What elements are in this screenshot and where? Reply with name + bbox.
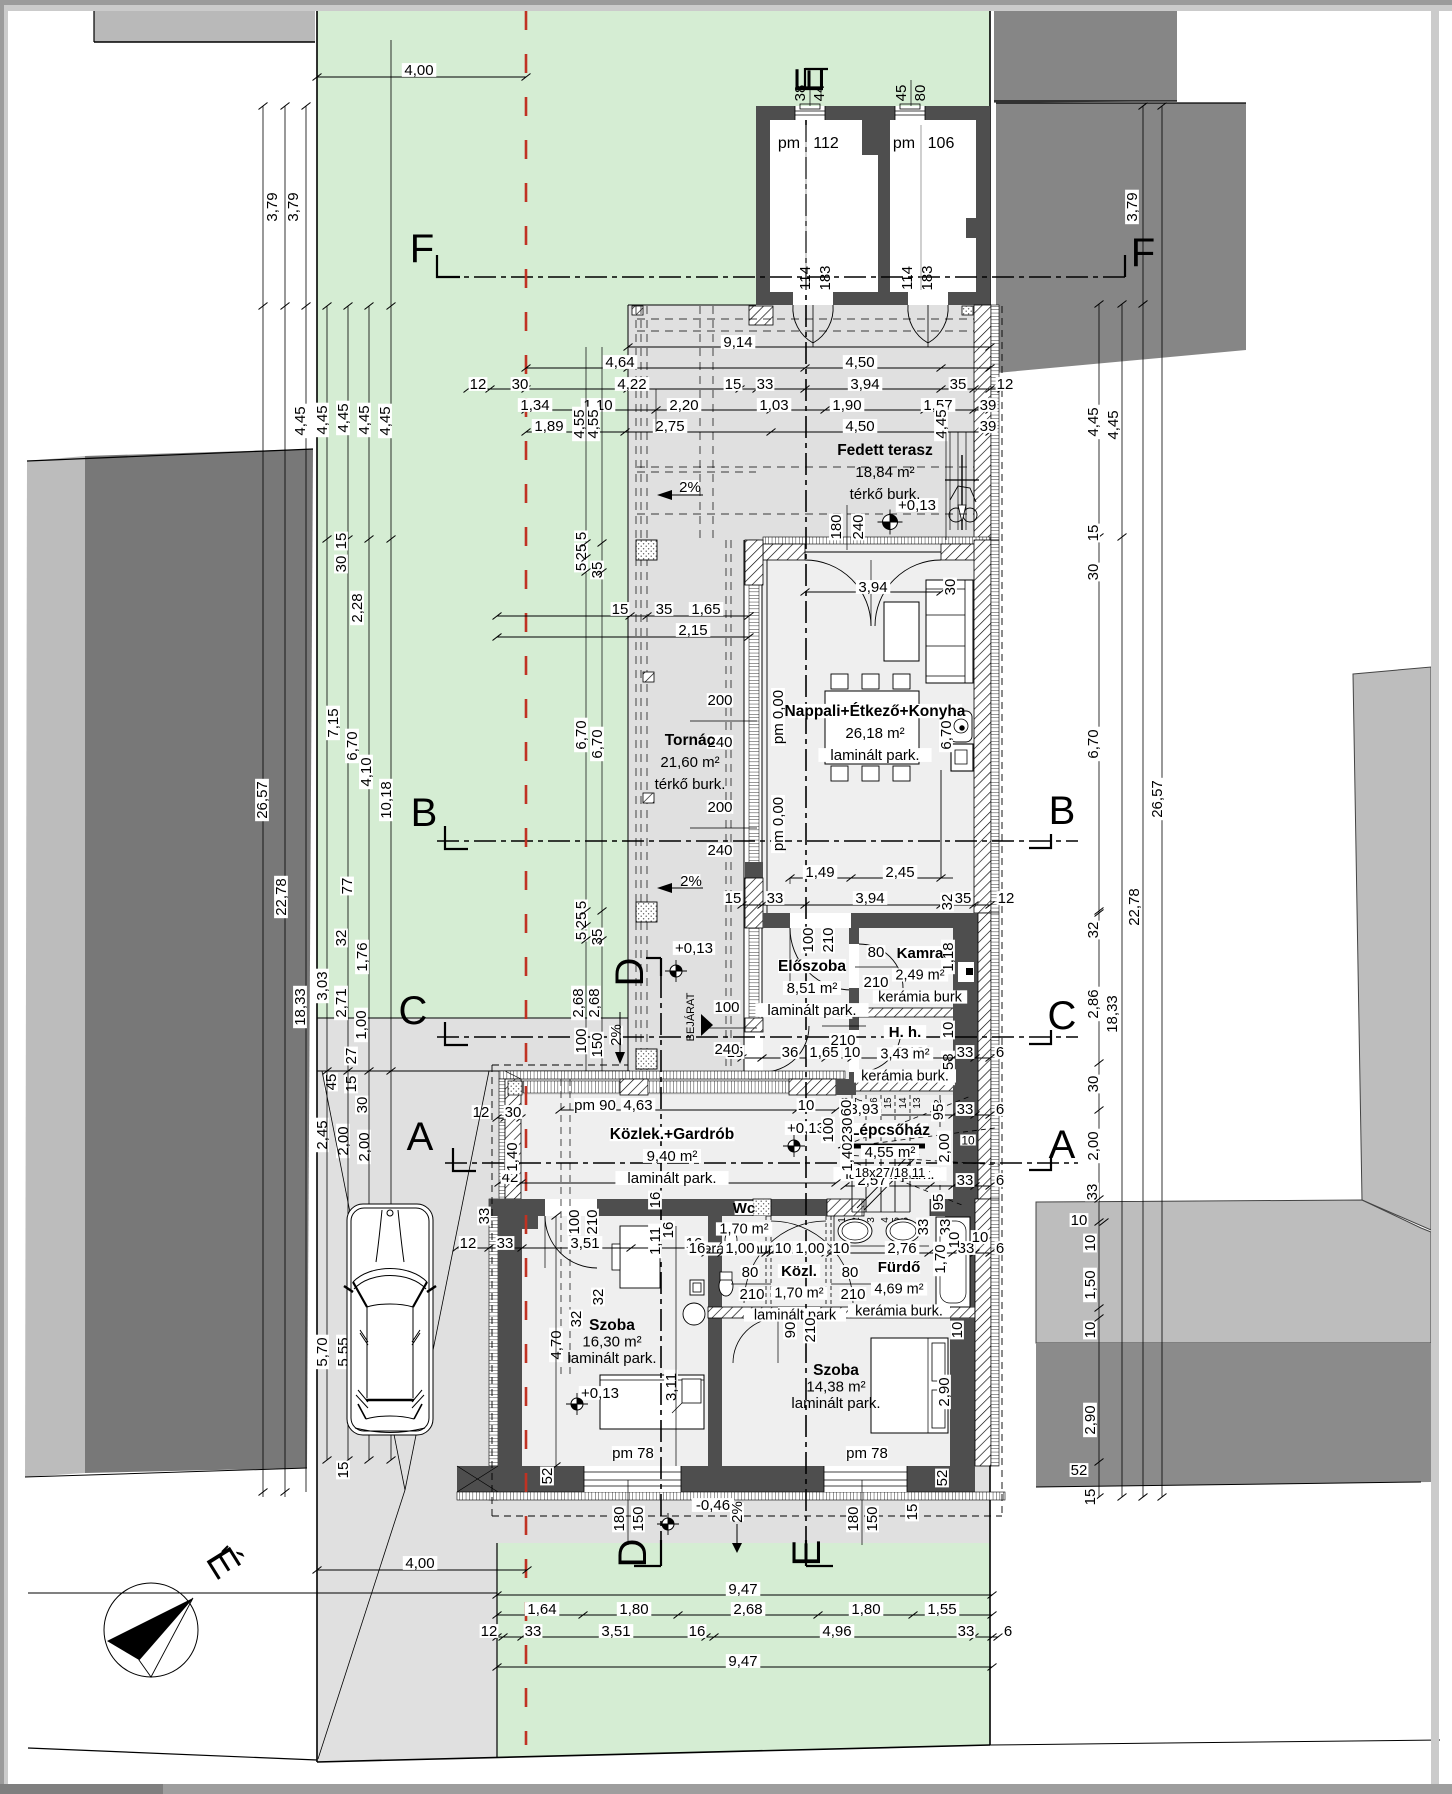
svg-text:-0,46: -0,46 xyxy=(696,1497,730,1514)
svg-text:33: 33 xyxy=(757,376,774,393)
svg-text:1,03: 1,03 xyxy=(759,397,788,414)
svg-text:Közl.: Közl. xyxy=(781,1263,817,1280)
svg-text:1,70 m²: 1,70 m² xyxy=(774,1286,823,1302)
svg-text:100: 100 xyxy=(573,1028,590,1053)
svg-text:80: 80 xyxy=(868,944,885,961)
svg-text:4,00: 4,00 xyxy=(404,62,433,79)
svg-text:15: 15 xyxy=(904,1504,921,1521)
svg-text:15: 15 xyxy=(725,890,742,907)
svg-text:Közlek.+Gardrób: Közlek.+Gardrób xyxy=(610,1126,734,1143)
svg-text:12: 12 xyxy=(481,1623,498,1640)
svg-text:32: 32 xyxy=(333,930,350,947)
svg-text:6: 6 xyxy=(996,1044,1004,1061)
svg-text:4,55 m²: 4,55 m² xyxy=(865,1144,916,1161)
svg-text:10: 10 xyxy=(775,1240,792,1257)
svg-text:térkő burk.: térkő burk. xyxy=(850,486,921,503)
svg-text:33: 33 xyxy=(915,1219,932,1236)
svg-text:106: 106 xyxy=(928,135,955,152)
svg-text:15: 15 xyxy=(725,376,742,393)
svg-text:240: 240 xyxy=(714,1041,739,1058)
svg-text:pm: pm xyxy=(893,135,915,152)
svg-text:4,63: 4,63 xyxy=(623,1097,652,1114)
svg-text:100: 100 xyxy=(566,1209,583,1234)
svg-text:6: 6 xyxy=(996,1172,1004,1189)
svg-text:4,45: 4,45 xyxy=(314,405,331,434)
svg-text:4,22: 4,22 xyxy=(617,376,646,393)
svg-text:21,60 m²: 21,60 m² xyxy=(660,754,719,771)
svg-text:D: D xyxy=(608,958,652,987)
svg-text:16: 16 xyxy=(689,1623,706,1640)
svg-text:183: 183 xyxy=(919,265,936,290)
svg-text:Kamra: Kamra xyxy=(897,945,944,962)
svg-text:laminált park.: laminált park. xyxy=(791,1395,880,1412)
svg-text:180: 180 xyxy=(611,1506,628,1531)
svg-text:C: C xyxy=(1048,994,1077,1038)
svg-text:2,45: 2,45 xyxy=(885,864,914,881)
svg-text:114: 114 xyxy=(797,266,814,290)
svg-text:2,49 m²: 2,49 m² xyxy=(895,968,944,984)
svg-text:4,10: 4,10 xyxy=(358,757,375,786)
svg-text:4,70: 4,70 xyxy=(548,1330,565,1359)
svg-text:+0,13: +0,13 xyxy=(675,940,713,957)
svg-text:12: 12 xyxy=(998,890,1015,907)
svg-text:33: 33 xyxy=(1084,1184,1101,1201)
svg-text:80: 80 xyxy=(742,1264,759,1281)
svg-text:10: 10 xyxy=(833,1240,850,1257)
svg-text:240: 240 xyxy=(850,514,867,539)
svg-text:2%: 2% xyxy=(608,1024,625,1046)
svg-text:16: 16 xyxy=(647,1192,664,1209)
svg-text:180: 180 xyxy=(845,1506,862,1531)
svg-text:Fedett terasz: Fedett terasz xyxy=(837,442,933,459)
svg-text:1,50: 1,50 xyxy=(1082,1270,1099,1299)
svg-text:33: 33 xyxy=(957,1101,974,1118)
svg-text:32: 32 xyxy=(590,1289,607,1306)
svg-text:150: 150 xyxy=(864,1506,881,1531)
svg-text:1,65: 1,65 xyxy=(691,601,720,618)
svg-text:1,40: 1,40 xyxy=(839,1142,856,1171)
svg-text:13: 13 xyxy=(912,1097,923,1109)
svg-text:4,64: 4,64 xyxy=(605,354,634,371)
svg-text:3: 3 xyxy=(866,1217,877,1223)
svg-text:Előszoba: Előszoba xyxy=(778,958,846,975)
svg-text:4,55: 4,55 xyxy=(585,409,602,438)
svg-text:6,70: 6,70 xyxy=(1085,729,1102,758)
svg-text:3,94: 3,94 xyxy=(850,376,879,393)
svg-text:32: 32 xyxy=(568,1311,585,1328)
svg-text:10: 10 xyxy=(844,1044,861,1061)
svg-text:4: 4 xyxy=(880,1217,891,1223)
svg-text:33: 33 xyxy=(497,1235,514,1252)
svg-text:3,51: 3,51 xyxy=(601,1623,630,1640)
svg-text:kerámia burk.: kerámia burk. xyxy=(855,1304,943,1320)
svg-text:7,15: 7,15 xyxy=(325,708,342,737)
svg-text:4,00: 4,00 xyxy=(405,1555,434,1572)
svg-text:1,80: 1,80 xyxy=(619,1601,648,1618)
svg-text:4,50: 4,50 xyxy=(845,418,874,435)
svg-text:210: 210 xyxy=(802,1317,819,1342)
svg-text:200: 200 xyxy=(707,799,732,816)
svg-text:1,00: 1,00 xyxy=(795,1240,824,1257)
svg-text:18,33: 18,33 xyxy=(1104,995,1121,1033)
svg-text:4,45: 4,45 xyxy=(356,405,373,434)
svg-text:2,86: 2,86 xyxy=(1085,989,1102,1018)
svg-text:4,96: 4,96 xyxy=(822,1623,851,1640)
svg-text:H. h.: H. h. xyxy=(889,1024,922,1041)
svg-text:32: 32 xyxy=(1085,922,1102,939)
svg-text:210: 210 xyxy=(820,927,837,952)
svg-text:kerámia burk.: kerámia burk. xyxy=(861,1069,949,1085)
svg-text:33: 33 xyxy=(957,1172,974,1189)
svg-text:30: 30 xyxy=(1085,564,1102,581)
svg-text:26,57: 26,57 xyxy=(1149,780,1166,818)
svg-text:2,90: 2,90 xyxy=(936,1377,953,1406)
svg-text:180: 180 xyxy=(828,514,845,539)
svg-text:150: 150 xyxy=(630,1506,647,1531)
svg-text:9,14: 9,14 xyxy=(723,334,752,351)
svg-text:8,51 m²: 8,51 m² xyxy=(787,980,838,997)
svg-text:15: 15 xyxy=(333,533,350,550)
svg-text:52: 52 xyxy=(539,1468,556,1485)
svg-text:35: 35 xyxy=(589,562,606,579)
svg-text:52: 52 xyxy=(1071,1462,1088,1479)
svg-text:10: 10 xyxy=(961,1134,975,1148)
svg-text:33: 33 xyxy=(957,1044,974,1061)
svg-text:Tornác: Tornác xyxy=(665,732,716,749)
svg-text:1,90: 1,90 xyxy=(832,397,861,414)
svg-text:80: 80 xyxy=(912,85,929,102)
svg-text:3,43 m²: 3,43 m² xyxy=(880,1047,929,1063)
svg-text:112: 112 xyxy=(813,135,839,152)
svg-text:30: 30 xyxy=(505,1104,522,1121)
svg-text:30: 30 xyxy=(333,556,350,573)
svg-text:150: 150 xyxy=(589,1032,606,1057)
svg-text:15: 15 xyxy=(335,1462,352,1479)
svg-text:B: B xyxy=(411,791,438,835)
svg-text:10,18: 10,18 xyxy=(378,781,395,819)
svg-text:6,70: 6,70 xyxy=(589,729,606,758)
svg-text:39: 39 xyxy=(980,397,997,414)
svg-text:B: B xyxy=(1049,789,1076,833)
svg-text:35: 35 xyxy=(955,890,972,907)
svg-text:33: 33 xyxy=(958,1623,975,1640)
svg-text:15: 15 xyxy=(883,1097,894,1109)
svg-text:Szoba: Szoba xyxy=(589,1317,635,1334)
svg-text:2,15: 2,15 xyxy=(678,622,707,639)
svg-text:4,45: 4,45 xyxy=(1085,407,1102,436)
svg-text:100: 100 xyxy=(800,927,817,952)
svg-text:laminált park.: laminált park. xyxy=(830,747,919,764)
svg-text:pm 78: pm 78 xyxy=(612,1445,654,1462)
svg-text:15: 15 xyxy=(343,1076,360,1093)
svg-text:39: 39 xyxy=(980,418,997,435)
svg-text:230: 230 xyxy=(839,1117,856,1142)
svg-text:10: 10 xyxy=(940,1022,957,1039)
svg-text:12: 12 xyxy=(997,376,1014,393)
svg-text:4,45: 4,45 xyxy=(335,403,352,432)
svg-text:240: 240 xyxy=(707,842,732,859)
svg-text:26,57: 26,57 xyxy=(254,781,271,819)
svg-text:1,65: 1,65 xyxy=(809,1044,838,1061)
svg-text:3,79: 3,79 xyxy=(1124,192,1141,221)
svg-text:térkő burk.: térkő burk. xyxy=(655,776,726,793)
svg-text:1,70: 1,70 xyxy=(932,1244,949,1273)
svg-text:C: C xyxy=(399,989,428,1033)
svg-text:pm: pm xyxy=(778,135,800,152)
svg-text:14,38 m²: 14,38 m² xyxy=(806,1379,865,1396)
svg-text:18x27/18,11: 18x27/18,11 xyxy=(855,1165,926,1180)
svg-text:2,76: 2,76 xyxy=(887,1240,916,1257)
svg-text:100: 100 xyxy=(820,1117,837,1142)
svg-text:6: 6 xyxy=(996,1101,1004,1118)
svg-text:32: 32 xyxy=(939,894,956,911)
svg-text:Lépcsőház: Lépcsőház xyxy=(850,1122,930,1139)
svg-text:10: 10 xyxy=(972,1229,989,1246)
svg-text:BEJÁRAT: BEJÁRAT xyxy=(684,992,697,1041)
svg-text:1,49: 1,49 xyxy=(805,864,834,881)
svg-text:2%: 2% xyxy=(729,1501,746,1523)
svg-text:4,45: 4,45 xyxy=(292,406,309,435)
svg-text:3,94: 3,94 xyxy=(855,890,884,907)
svg-text:2,75: 2,75 xyxy=(655,418,684,435)
svg-text:38: 38 xyxy=(792,85,809,102)
svg-text:1,00: 1,00 xyxy=(353,1010,370,1039)
svg-text:9,40 m²: 9,40 m² xyxy=(647,1148,698,1165)
svg-text:1,34: 1,34 xyxy=(520,397,549,414)
svg-text:4,45: 4,45 xyxy=(377,406,394,435)
svg-text:35: 35 xyxy=(950,376,967,393)
svg-text:6,70: 6,70 xyxy=(938,720,955,749)
svg-text:2,00: 2,00 xyxy=(356,1132,373,1161)
svg-text:33: 33 xyxy=(767,890,784,907)
svg-text:Nappali+Étkező+Konyha: Nappali+Étkező+Konyha xyxy=(785,703,966,720)
svg-text:pm 78: pm 78 xyxy=(846,1445,888,1462)
svg-text:15: 15 xyxy=(1085,525,1102,542)
svg-text:36: 36 xyxy=(782,1044,799,1061)
svg-text:60: 60 xyxy=(838,1100,855,1117)
svg-text:2,71: 2,71 xyxy=(333,988,350,1017)
svg-text:10: 10 xyxy=(949,1322,966,1339)
svg-text:F: F xyxy=(410,227,434,271)
svg-text:2,45: 2,45 xyxy=(314,1120,331,1149)
svg-text:210: 210 xyxy=(863,974,888,991)
svg-text:10: 10 xyxy=(1082,1322,1099,1339)
svg-text:22,78: 22,78 xyxy=(1126,888,1143,926)
svg-text:9,47: 9,47 xyxy=(728,1581,757,1598)
svg-text:1,80: 1,80 xyxy=(851,1601,880,1618)
svg-text:2,68: 2,68 xyxy=(586,988,603,1017)
svg-text:3,11: 3,11 xyxy=(663,1373,680,1401)
svg-text:33: 33 xyxy=(476,1208,493,1225)
svg-text:laminált park.: laminált park. xyxy=(567,1350,656,1367)
svg-text:2,20: 2,20 xyxy=(669,397,698,414)
svg-text:14: 14 xyxy=(898,1097,909,1109)
svg-text:183: 183 xyxy=(817,265,834,290)
svg-text:77: 77 xyxy=(339,878,356,895)
svg-text:4,45: 4,45 xyxy=(1105,410,1122,439)
svg-text:30: 30 xyxy=(942,579,959,596)
svg-text:200: 200 xyxy=(707,692,732,709)
svg-text:12: 12 xyxy=(460,1235,477,1252)
svg-text:2,28: 2,28 xyxy=(349,593,366,622)
svg-text:10: 10 xyxy=(798,1097,815,1114)
svg-text:6: 6 xyxy=(996,1240,1004,1257)
svg-text:1,89: 1,89 xyxy=(534,418,563,435)
svg-text:18,33: 18,33 xyxy=(292,988,309,1026)
svg-text:5: 5 xyxy=(573,532,590,540)
svg-text:45: 45 xyxy=(893,85,910,102)
svg-text:210: 210 xyxy=(584,1209,601,1234)
svg-text:Wc: Wc xyxy=(733,1200,756,1217)
svg-text:2,68: 2,68 xyxy=(733,1601,762,1618)
svg-text:210: 210 xyxy=(840,1286,865,1303)
svg-text:A: A xyxy=(407,1115,434,1159)
svg-text:kerámia burk: kerámia burk xyxy=(878,990,963,1006)
svg-text:210: 210 xyxy=(739,1286,764,1303)
svg-text:52: 52 xyxy=(934,1470,951,1487)
svg-text:3,94: 3,94 xyxy=(858,579,887,596)
svg-text:3,51: 3,51 xyxy=(570,1235,599,1252)
svg-text:3,03: 3,03 xyxy=(314,971,331,1000)
svg-text:6,70: 6,70 xyxy=(344,731,361,760)
svg-text:A: A xyxy=(1049,1123,1076,1167)
svg-text:+0,13: +0,13 xyxy=(581,1385,619,1402)
svg-text:16,30 m²: 16,30 m² xyxy=(582,1334,641,1351)
svg-text:100: 100 xyxy=(714,999,739,1016)
svg-text:2,00: 2,00 xyxy=(1085,1131,1102,1160)
svg-text:1,55: 1,55 xyxy=(927,1601,956,1618)
svg-text:4,45: 4,45 xyxy=(933,409,950,438)
svg-text:laminált park.: laminált park. xyxy=(767,1002,856,1019)
svg-text:16: 16 xyxy=(660,1222,677,1239)
svg-text:4,69 m²: 4,69 m² xyxy=(874,1282,923,1298)
svg-text:2,00: 2,00 xyxy=(936,1133,953,1162)
svg-text:5: 5 xyxy=(573,563,590,571)
svg-text:26,18 m²: 26,18 m² xyxy=(845,725,904,742)
svg-text:5: 5 xyxy=(573,901,590,909)
svg-text:12: 12 xyxy=(470,376,487,393)
svg-text:95: 95 xyxy=(930,1104,947,1121)
svg-text:22,78: 22,78 xyxy=(273,878,290,916)
svg-text:1,00: 1,00 xyxy=(725,1240,754,1257)
svg-text:1,76: 1,76 xyxy=(354,942,371,971)
svg-text:80: 80 xyxy=(842,1264,859,1281)
svg-text:pm 90: pm 90 xyxy=(574,1097,616,1114)
svg-text:33: 33 xyxy=(525,1623,542,1640)
svg-text:16: 16 xyxy=(689,1240,706,1257)
svg-text:D: D xyxy=(611,1539,655,1568)
svg-text:27: 27 xyxy=(343,1048,360,1065)
svg-text:114: 114 xyxy=(899,266,916,290)
svg-text:1,40: 1,40 xyxy=(504,1142,521,1171)
svg-text:35: 35 xyxy=(656,601,673,618)
svg-text:6,70: 6,70 xyxy=(573,720,590,749)
svg-text:15: 15 xyxy=(1082,1489,1099,1506)
svg-text:10: 10 xyxy=(1071,1212,1088,1229)
svg-text:pm 0,00: pm 0,00 xyxy=(770,797,787,851)
svg-text:2,68: 2,68 xyxy=(570,988,587,1017)
svg-text:95: 95 xyxy=(930,1194,947,1211)
svg-text:2%: 2% xyxy=(679,479,701,496)
svg-text:18,84 m²: 18,84 m² xyxy=(855,464,914,481)
svg-text:2,90: 2,90 xyxy=(1082,1405,1099,1434)
svg-text:3,79: 3,79 xyxy=(264,192,281,221)
svg-text:30: 30 xyxy=(512,376,529,393)
svg-text:15: 15 xyxy=(612,601,629,618)
svg-text:5,70: 5,70 xyxy=(314,1337,331,1366)
svg-text:9,47: 9,47 xyxy=(728,1653,757,1670)
svg-text:Szoba: Szoba xyxy=(813,1362,859,1379)
svg-text:6: 6 xyxy=(1004,1623,1012,1640)
svg-text:1,70 m²: 1,70 m² xyxy=(719,1222,768,1238)
svg-text:laminált park.: laminált park. xyxy=(627,1170,716,1187)
svg-text:Fürdő: Fürdő xyxy=(878,1259,921,1276)
svg-text:30: 30 xyxy=(1085,1076,1102,1093)
svg-text:10: 10 xyxy=(1082,1235,1099,1252)
svg-text:4,50: 4,50 xyxy=(845,354,874,371)
svg-text:44: 44 xyxy=(811,85,828,102)
svg-text:1,64: 1,64 xyxy=(527,1601,556,1618)
svg-text:3,79: 3,79 xyxy=(285,192,302,221)
svg-text:90: 90 xyxy=(782,1322,799,1339)
svg-text:30: 30 xyxy=(354,1097,371,1114)
